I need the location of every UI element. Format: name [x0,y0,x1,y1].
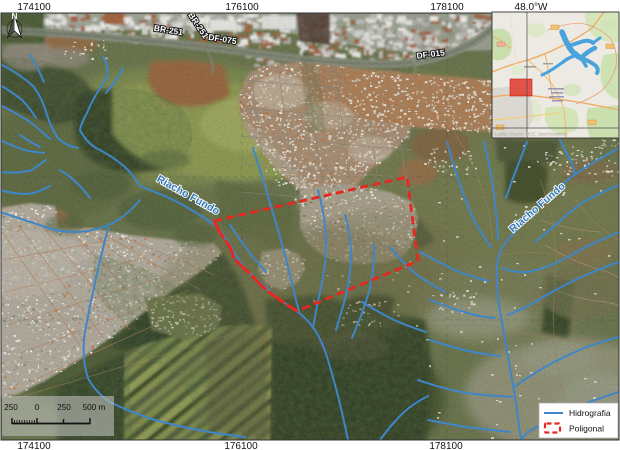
svg-text:178100: 178100 [430,2,464,13]
svg-text:Hidrografia: Hidrografia [569,408,611,418]
svg-text:176100: 176100 [225,2,259,13]
svg-text:N: N [12,12,18,21]
svg-text:Poligonal: Poligonal [569,424,604,434]
svg-text:174100: 174100 [17,2,51,13]
svg-text:0: 0 [35,403,40,412]
svg-text:250: 250 [4,403,18,412]
svg-text:178100: 178100 [429,441,463,450]
svg-text:Leaflet | Dados: IBGE, OpenStr: Leaflet | Dados: IBGE, OpenStreetMap [495,132,568,137]
svg-text:48.0°W: 48.0°W [515,2,548,13]
svg-text:250: 250 [57,403,71,412]
svg-text:174100: 174100 [17,441,51,450]
svg-text:500 m: 500 m [83,403,106,412]
svg-text:176100: 176100 [224,441,258,450]
